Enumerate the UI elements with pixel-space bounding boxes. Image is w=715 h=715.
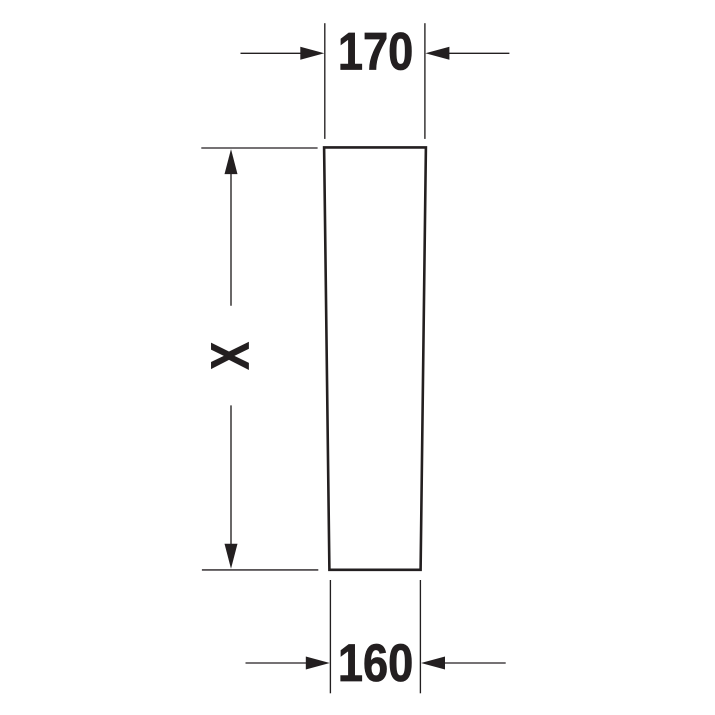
svg-text:160: 160 (338, 634, 414, 693)
svg-text:170: 170 (338, 22, 414, 81)
svg-text:X: X (200, 342, 260, 370)
